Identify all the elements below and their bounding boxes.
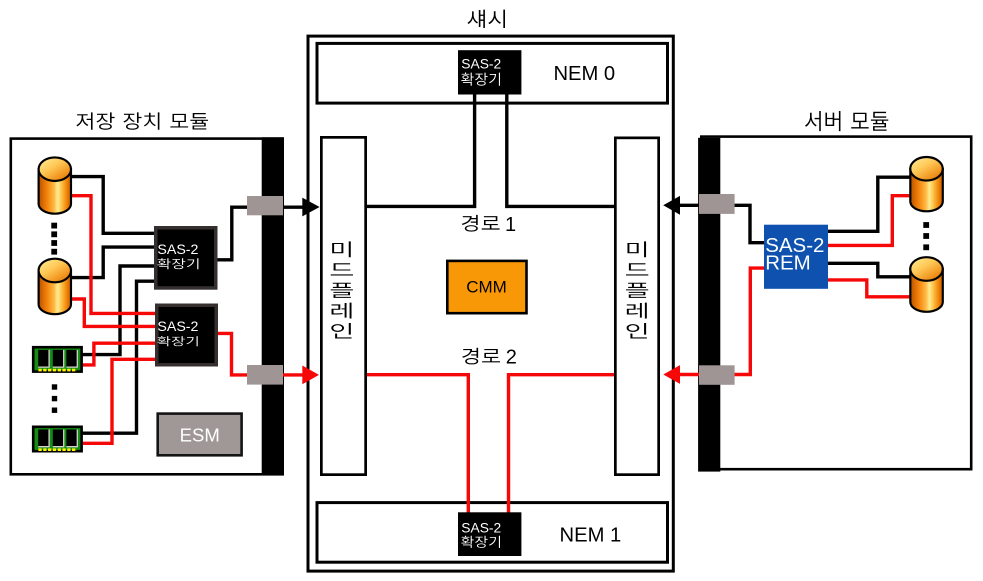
svg-text:SAS-2: SAS-2 [157, 242, 198, 258]
svg-text:2: 2 [506, 347, 517, 369]
svg-text:NEM 1: NEM 1 [560, 524, 622, 546]
svg-text:ESM: ESM [180, 424, 220, 445]
svg-text:REM: REM [765, 252, 811, 275]
svg-text:CMM: CMM [466, 277, 507, 296]
svg-text:NEM 0: NEM 0 [553, 63, 615, 85]
svg-text:SAS-2: SAS-2 [157, 319, 198, 335]
svg-text:SAS-2: SAS-2 [461, 521, 501, 536]
svg-text:SAS-2: SAS-2 [461, 57, 501, 72]
svg-text:1: 1 [505, 214, 516, 236]
